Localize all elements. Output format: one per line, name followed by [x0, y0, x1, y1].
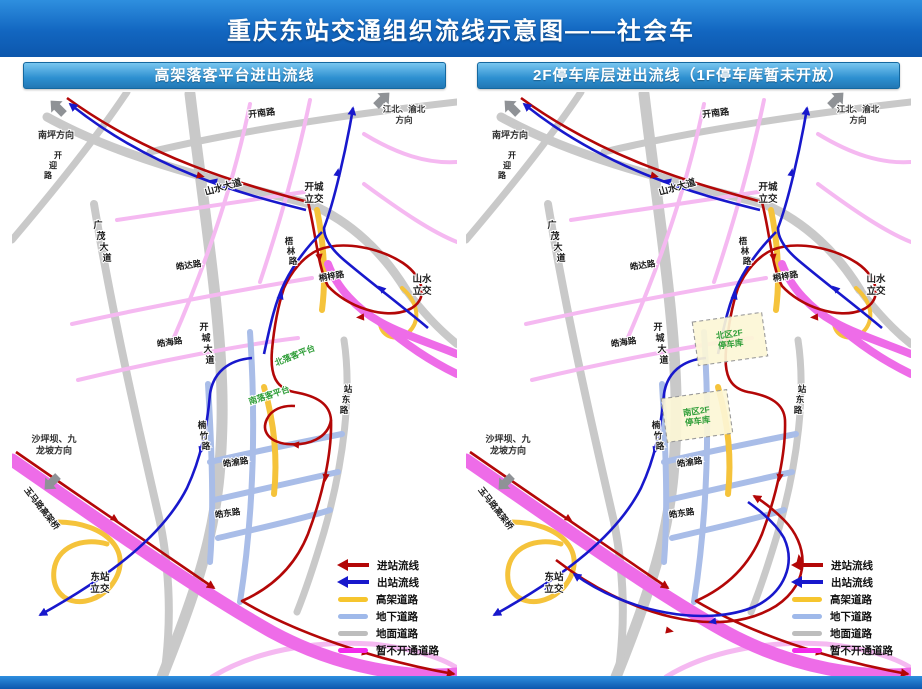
legend-bar-icon: [338, 648, 368, 653]
flow-arrow-icon: [356, 313, 364, 321]
title-bar: 重庆东站交通组织流线示意图——社会车: [0, 0, 922, 57]
legend-item: 出站流线: [792, 575, 893, 589]
legend-arrow-icon: [801, 580, 823, 584]
map-label: 皓达路: [175, 258, 202, 272]
panel-right-header: 2F停车库层进出流线（1F停车库暂未开放）: [477, 62, 900, 89]
map-label: 开迎路: [498, 151, 516, 180]
panel-2f-parking: 2F停车库层进出流线（1F停车库暂未开放） 北区2F停车库南区2F停车库开南路山…: [466, 62, 911, 677]
map-label: 南坪方向: [492, 129, 528, 140]
map-label: 开迎路: [44, 151, 62, 180]
parking-box-label: 南区2F停车库: [682, 404, 711, 428]
legend-bar-icon: [792, 648, 822, 653]
legend-label: 地下道路: [376, 609, 418, 624]
map-label: 江北、渝北方向: [383, 104, 426, 125]
legend-item: 出站流线: [338, 575, 439, 589]
map-label: 梧林路: [739, 236, 752, 266]
legend-arrow-icon: [801, 563, 823, 567]
legend-bar-icon: [338, 597, 368, 602]
map-label: 开南路: [247, 105, 276, 119]
legend-item: 地面道路: [338, 626, 439, 640]
legend-label: 地面道路: [830, 626, 872, 641]
map-label: 开南路: [701, 105, 730, 119]
map-label: 开城立交: [304, 181, 324, 205]
flow-arrow-icon: [665, 626, 674, 635]
legend-label: 暂不开通道路: [376, 643, 439, 658]
map-label: 皓海路: [610, 335, 637, 349]
legend-label: 地下道路: [830, 609, 872, 624]
map-label: 江北、渝北方向: [837, 104, 880, 125]
map-label: 皓达路: [629, 258, 656, 272]
map-label: 山水立交: [866, 273, 886, 297]
legend-bar-icon: [792, 631, 822, 636]
legend-left: 进站流线出站流线高架道路地下道路地面道路暂不开通道路: [338, 558, 439, 657]
map-label: 南坪方向: [38, 129, 74, 140]
map-right-area: 北区2F停车库南区2F停车库开南路山水大道开迎路南坪方向江北、渝北方向开城立交山…: [466, 92, 911, 677]
legend-bar-icon: [338, 631, 368, 636]
map-label: 开城大道: [199, 322, 214, 365]
legend-item: 进站流线: [792, 558, 893, 572]
legend-item: 地下道路: [792, 609, 893, 623]
legend-label: 出站流线: [377, 575, 419, 590]
legend-arrow-icon: [347, 563, 369, 567]
legend-item: 高架道路: [792, 592, 893, 606]
parking-box-label: 北区2F停车库: [715, 327, 744, 351]
legend-label: 出站流线: [831, 575, 873, 590]
map-label: 沙坪坝、九龙坡方向: [31, 433, 76, 456]
legend-label: 高架道路: [376, 592, 418, 607]
legend-label: 暂不开通道路: [830, 643, 893, 658]
panel-left-header: 高架落客平台进出流线: [23, 62, 446, 89]
legend-item: 暂不开通道路: [338, 643, 439, 657]
map-label: 沙坪坝、九龙坡方向: [485, 433, 530, 456]
legend-arrow-icon: [347, 580, 369, 584]
map-label: 站东路: [794, 384, 807, 415]
map-left-area: 开南路山水大道开迎路南坪方向江北、渝北方向开城立交山水立交梧林路桐梓路广茂大道皓…: [12, 92, 457, 677]
map-label: 山水立交: [412, 273, 432, 297]
legend-bar-icon: [792, 597, 822, 602]
bottom-strip: [0, 676, 922, 689]
legend-item: 高架道路: [338, 592, 439, 606]
page-title: 重庆东站交通组织流线示意图——社会车: [227, 11, 695, 46]
legend-bar-icon: [338, 614, 368, 619]
map-label: 皓海路: [156, 335, 183, 349]
flow-arrow-icon: [810, 313, 818, 321]
legend-item: 地面道路: [792, 626, 893, 640]
map-label: 梧林路: [285, 236, 298, 266]
legend-item: 地下道路: [338, 609, 439, 623]
legend-label: 地面道路: [376, 626, 418, 641]
panel-elevated-dropoff: 高架落客平台进出流线 开南路山水大道开迎路南坪方向江北、渝北方向开城立交山水立交…: [12, 62, 457, 677]
map-label: 北落客平台: [273, 342, 317, 367]
parking-box: 南区2F停车库: [661, 390, 732, 443]
legend-item: 进站流线: [338, 558, 439, 572]
map-label: 开城大道: [653, 322, 668, 365]
parking-box: 北区2F停车库: [692, 312, 767, 365]
map-label: 站东路: [340, 384, 353, 415]
legend-label: 进站流线: [831, 558, 873, 573]
legend-label: 进站流线: [377, 558, 419, 573]
legend-label: 高架道路: [830, 592, 872, 607]
legend-right: 进站流线出站流线高架道路地下道路地面道路暂不开通道路: [792, 558, 893, 657]
legend-bar-icon: [792, 614, 822, 619]
map-label: 开城立交: [758, 181, 778, 205]
page: 重庆东站交通组织流线示意图——社会车 高架落客平台进出流线 开南路山水大道开迎路…: [0, 0, 922, 689]
legend-item: 暂不开通道路: [792, 643, 893, 657]
